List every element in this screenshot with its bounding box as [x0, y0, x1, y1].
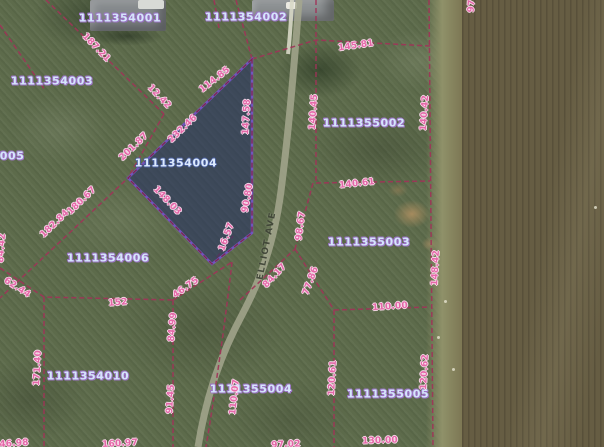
parcel-map[interactable]: 1111354001111135400211113540031111354004… — [0, 0, 604, 447]
selected-parcel[interactable] — [128, 59, 252, 264]
map-overlay — [0, 0, 604, 447]
